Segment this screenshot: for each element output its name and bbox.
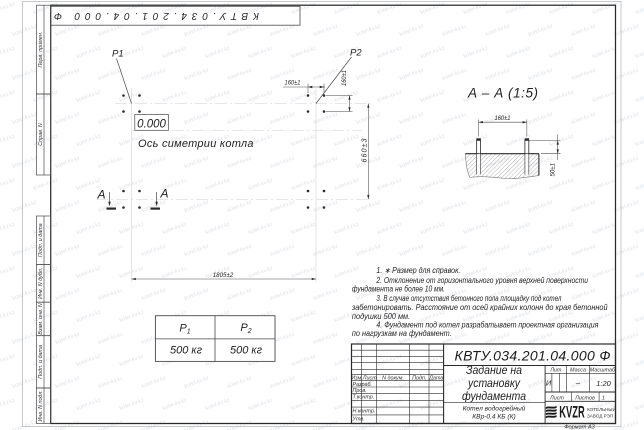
svg-text:А: А (97, 188, 106, 202)
svg-text:Лит: Лит (549, 367, 562, 373)
svg-text:3. В случае отсутствия бетонно: 3. В случае отсутствия бетонного пола пл… (376, 294, 561, 303)
svg-text:660±3: 660±3 (360, 139, 369, 163)
svg-text:Масса: Масса (570, 367, 586, 373)
svg-text:Подп.: Подп. (412, 376, 426, 382)
svg-text:Перв. примен.: Перв. примен. (38, 32, 44, 68)
svg-text:Подп. и дата: Подп. и дата (38, 223, 44, 257)
svg-text:Пров.: Пров. (353, 388, 367, 394)
svg-text:Т.контр.: Т.контр. (353, 395, 375, 401)
svg-text:установку: установку (467, 378, 521, 390)
svg-text:Справ. N: Справ. N (38, 123, 44, 146)
svg-text:KVZR: KVZR (559, 404, 585, 422)
svg-text:–: – (575, 378, 581, 387)
svg-text:Инв. N подл.: Инв. N подл. (38, 390, 44, 422)
svg-text:50±1: 50±1 (550, 163, 557, 177)
svg-text:забетонировать. Расстояние от: забетонировать. Расстояние от осей крайн… (351, 303, 608, 312)
svg-text:160±1: 160±1 (341, 70, 348, 86)
svg-text:А: А (160, 187, 169, 201)
svg-text:Задание на: Задание на (466, 365, 522, 377)
svg-text:1:20: 1:20 (596, 379, 611, 388)
svg-text:Формат А3: Формат А3 (564, 425, 595, 430)
svg-text:Взам. инв. N: Взам. инв. N (38, 303, 44, 335)
svg-text:Листов: Листов (574, 396, 595, 402)
svg-text:1805±2: 1805±2 (213, 272, 234, 279)
svg-text:Утв.: Утв. (352, 416, 365, 422)
svg-text:фундамента: фундамента (462, 391, 526, 403)
svg-text:КОТЕЛЬНЫЙ: КОТЕЛЬНЫЙ (587, 405, 616, 412)
svg-text:ЗАВОД РЭП: ЗАВОД РЭП (587, 413, 613, 418)
svg-text:0.000: 0.000 (137, 118, 166, 130)
svg-text:Масштаб: Масштаб (590, 367, 616, 373)
svg-text:Ось симетрии котла: Ось симетрии котла (138, 138, 254, 150)
svg-text:P2: P2 (350, 48, 362, 59)
svg-text:Дата: Дата (428, 376, 443, 382)
svg-text:500 кг: 500 кг (230, 345, 263, 357)
svg-text:И: И (546, 379, 552, 388)
svg-text:P1: P1 (112, 49, 124, 60)
svg-text:КВр-0,4 КБ (К): КВр-0,4 КБ (К) (472, 414, 515, 421)
svg-text:160±1: 160±1 (285, 80, 301, 87)
svg-text:Подп. и дата: Подп. и дата (38, 345, 44, 379)
svg-text:500 кг: 500 кг (170, 345, 203, 357)
svg-text:2. Отклонение от горизонтально: 2. Отклонение от горизонтального уровня … (376, 276, 589, 285)
svg-text:фундамента не более 10 мм.: фундамента не более 10 мм. (352, 285, 445, 294)
svg-text:по нагрузкам на фундамент.: по нагрузкам на фундамент. (352, 329, 452, 338)
svg-text:1: 1 (602, 396, 605, 402)
svg-text:Н.контр.: Н.контр. (353, 409, 376, 415)
svg-text:Разраб.: Разраб. (353, 382, 373, 388)
svg-text:КВТУ.034.201.04.000 Ф: КВТУ.034.201.04.000 Ф (455, 348, 611, 364)
svg-text:Инв. N дубл.: Инв. N дубл. (38, 268, 44, 299)
svg-text:Котел водогрейный: Котел водогрейный (463, 405, 526, 413)
svg-text:1. ∗ Размер для справок.: 1. ∗ Размер для справок. (376, 266, 460, 275)
svg-text:Лист: Лист (549, 396, 564, 402)
svg-text:160±1: 160±1 (495, 115, 511, 122)
svg-text:Изм.Лист: Изм.Лист (351, 376, 377, 382)
svg-text:N докум.: N докум. (382, 376, 404, 382)
svg-text:А – А (1:5): А – А (1:5) (467, 86, 538, 101)
